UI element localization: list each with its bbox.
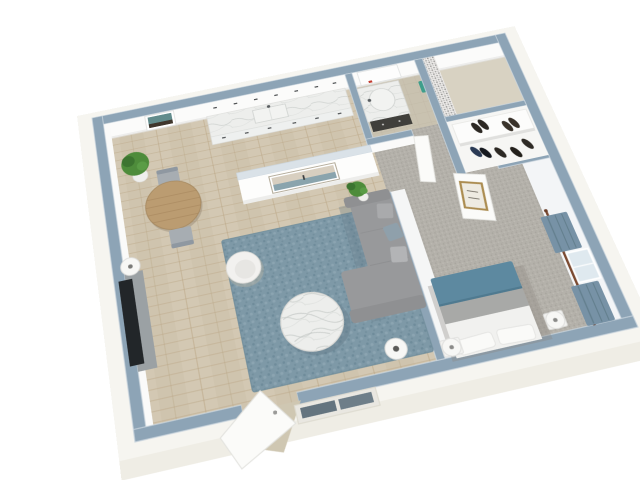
sofa-pillow-light	[390, 246, 408, 263]
floorplan-render	[0, 0, 640, 480]
sofa-pillow	[377, 203, 394, 218]
apartment-3d-scene	[92, 33, 638, 442]
floorplan-svg	[92, 33, 638, 442]
